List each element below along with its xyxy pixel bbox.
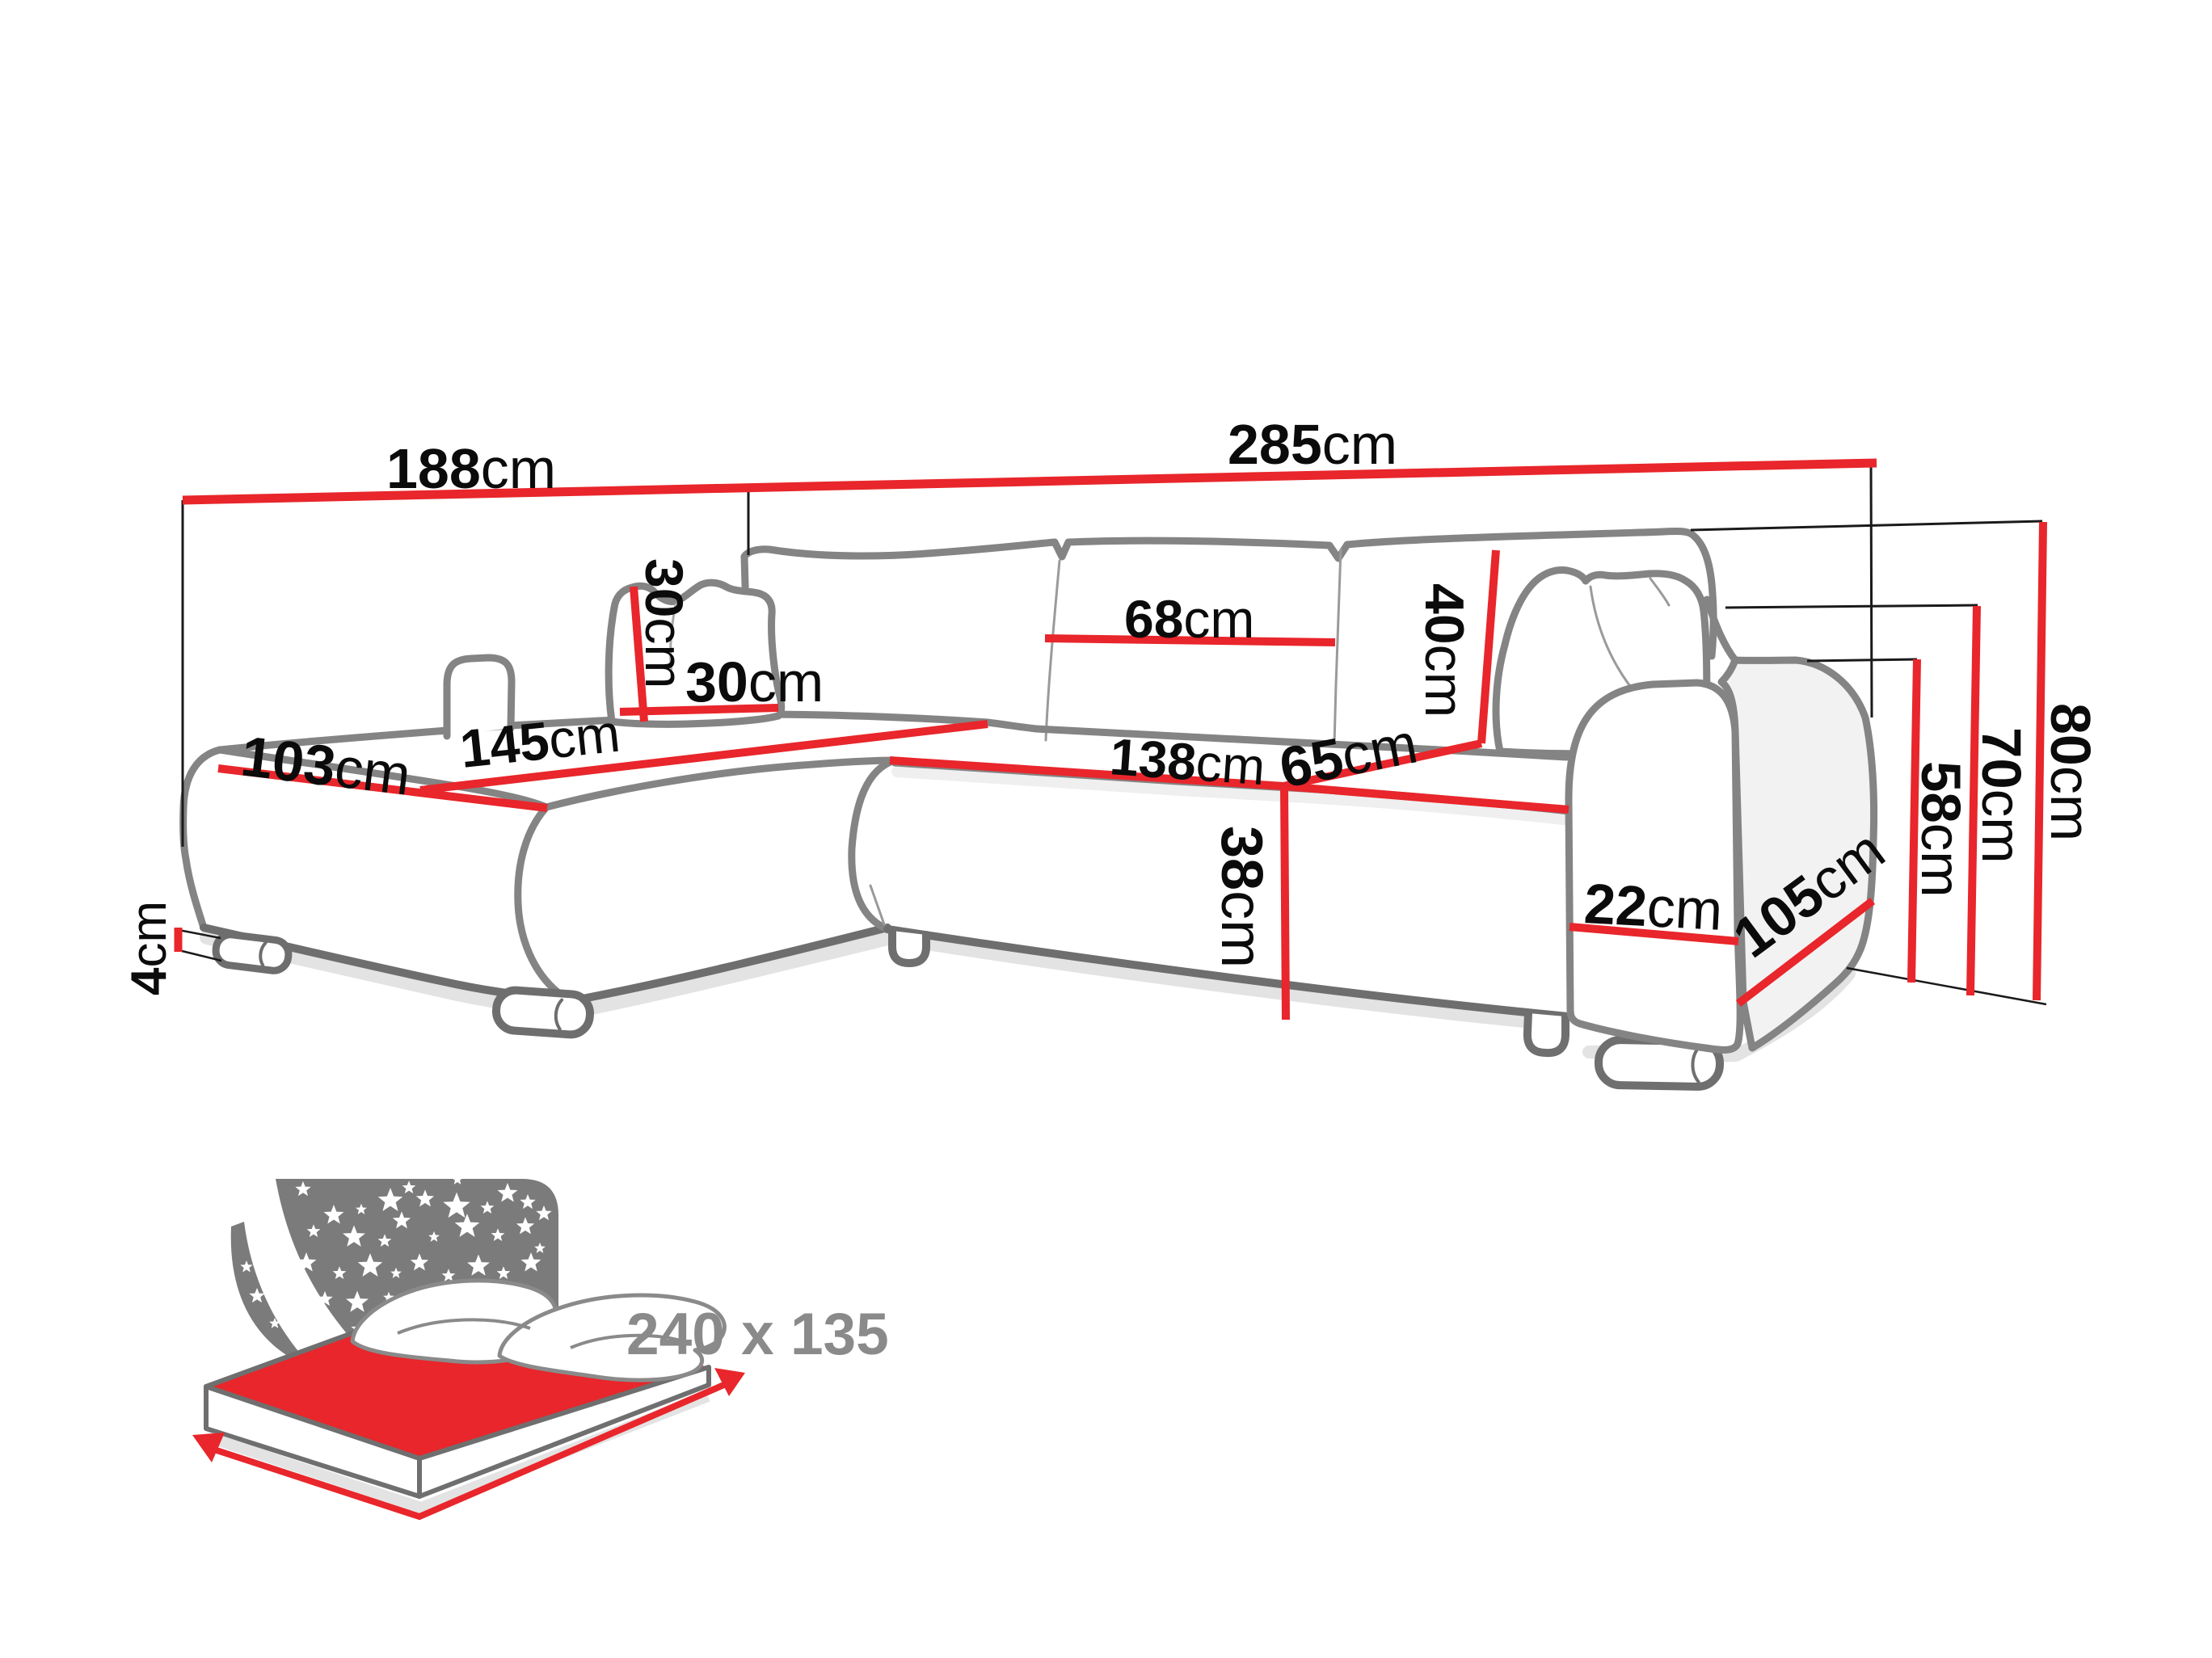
- svg-text:188cm: 188cm: [386, 437, 556, 500]
- svg-text:138cm: 138cm: [1108, 727, 1267, 796]
- svg-text:68cm: 68cm: [1124, 589, 1254, 649]
- svg-text:285cm: 285cm: [1228, 413, 1397, 476]
- svg-text:22cm: 22cm: [1582, 872, 1724, 942]
- svg-text:38cm: 38cm: [1209, 826, 1274, 968]
- svg-text:4cm: 4cm: [121, 901, 177, 995]
- svg-text:40cm: 40cm: [1414, 583, 1475, 717]
- svg-text:58cm: 58cm: [1910, 761, 1972, 898]
- svg-text:80cm: 80cm: [2039, 703, 2102, 841]
- svg-text:70cm: 70cm: [1970, 727, 2033, 864]
- svg-text:240 x 135: 240 x 135: [626, 1302, 889, 1367]
- svg-text:30cm: 30cm: [685, 650, 824, 713]
